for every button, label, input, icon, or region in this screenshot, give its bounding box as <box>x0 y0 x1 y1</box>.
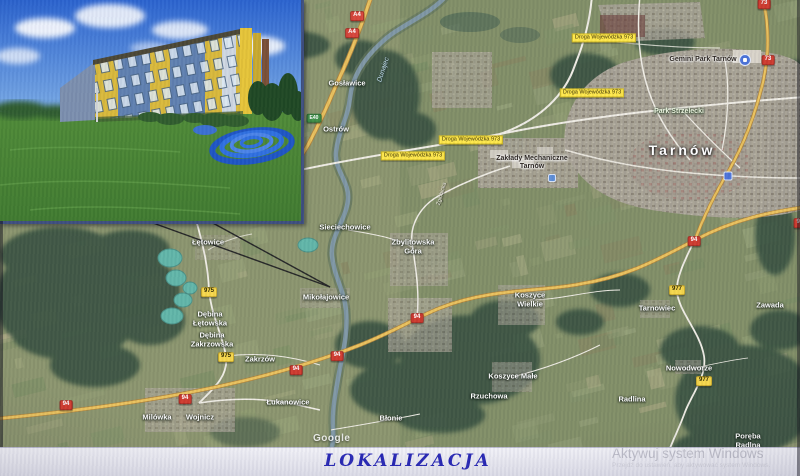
inset-photo <box>0 0 304 224</box>
windows-activation-line2: Przejdź do ustawień, aby aktywować syste… <box>612 462 800 469</box>
screen-edge-left <box>0 221 3 447</box>
google-watermark: Google <box>313 433 350 444</box>
windows-activation-line1: Aktywuj system Windows <box>612 446 800 461</box>
building-photo-illustration <box>0 0 301 221</box>
pipe-pile <box>193 125 217 135</box>
windows-activation-watermark: Aktywuj system Windows Przejdź do ustawi… <box>612 446 800 469</box>
page-title: LOKALIZACJA <box>324 451 491 471</box>
screen-photo: Droga Wojewódzka 973Droga Wojewódzka 973… <box>0 0 800 476</box>
